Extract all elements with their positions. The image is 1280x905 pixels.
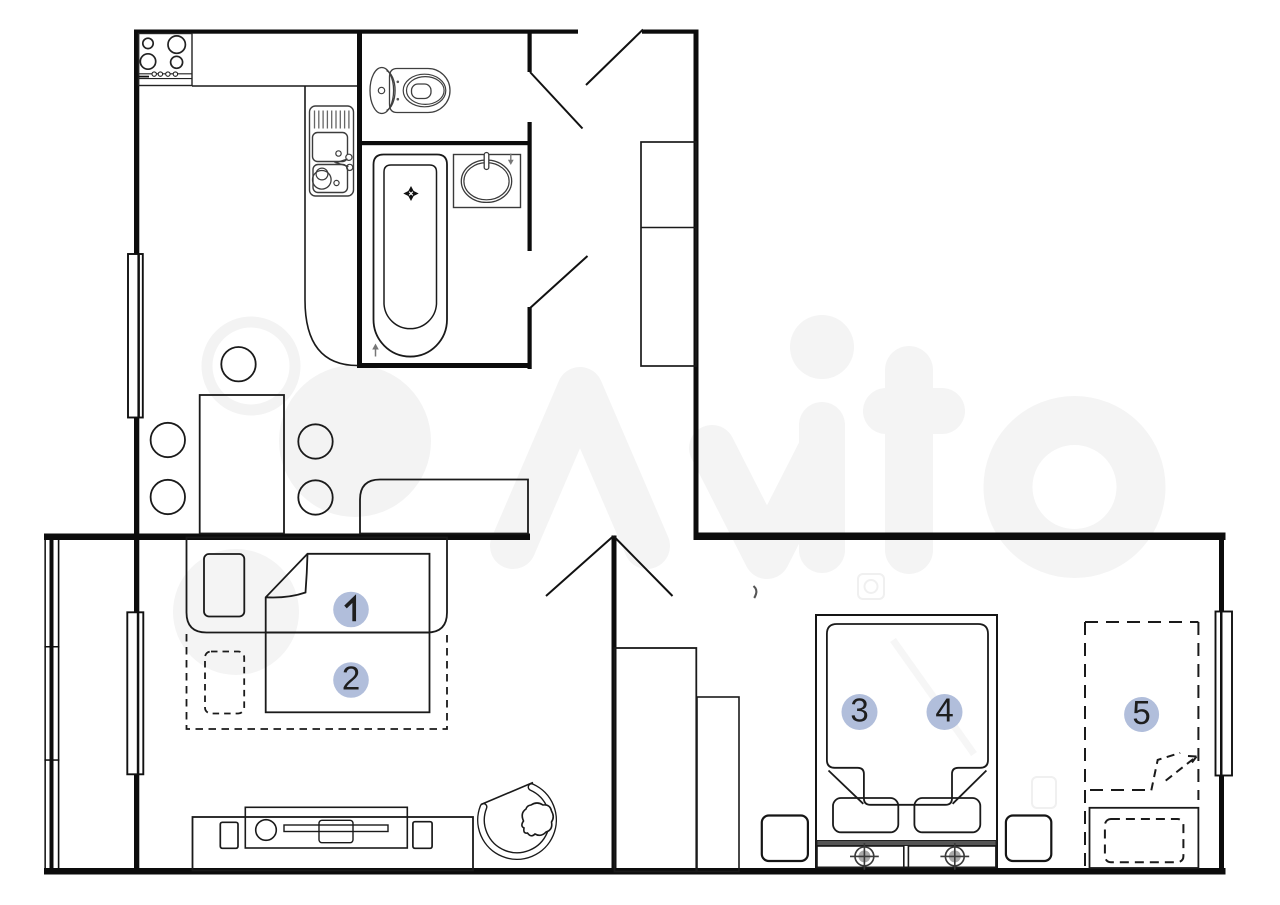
- svg-text:5: 5: [1132, 694, 1150, 731]
- svg-text:4: 4: [935, 692, 953, 729]
- svg-text:2: 2: [342, 660, 360, 697]
- svg-text:3: 3: [850, 692, 868, 729]
